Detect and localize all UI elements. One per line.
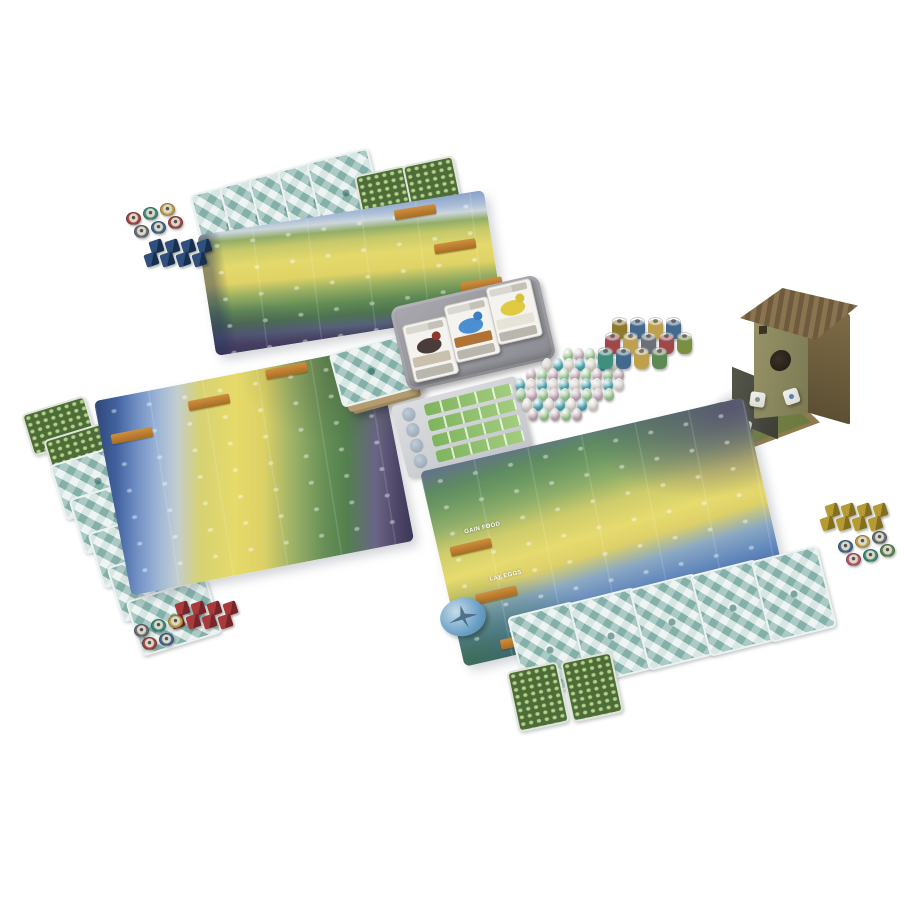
food-token	[855, 535, 870, 548]
food-token	[126, 212, 141, 225]
action-cube	[819, 515, 835, 531]
action-cube	[175, 251, 191, 267]
action-cube	[217, 613, 233, 629]
action-cube	[867, 515, 883, 531]
food-token	[159, 633, 174, 646]
action-cube	[851, 515, 867, 531]
food-token	[168, 615, 183, 628]
food-token	[134, 624, 149, 637]
food-token	[151, 221, 166, 234]
food-token	[863, 549, 878, 562]
egg	[539, 408, 549, 421]
round-goal-tile	[413, 453, 429, 469]
egg	[604, 388, 614, 401]
food-token	[872, 531, 887, 544]
action-cube	[835, 515, 851, 531]
food-token	[880, 544, 895, 557]
tabletop-photo: GAIN FOOD LAY EGGS DRAW BIRD CARDS	[0, 0, 910, 910]
egg	[528, 408, 538, 421]
action-banner	[434, 238, 477, 254]
action-banner	[187, 393, 230, 411]
food-token	[151, 619, 166, 632]
food-token	[838, 540, 853, 553]
action-banner	[449, 538, 492, 557]
egg	[588, 398, 598, 411]
food-die	[749, 391, 766, 408]
food-token	[160, 203, 175, 216]
food-token-stack	[598, 350, 613, 369]
round-goal-tile	[405, 422, 421, 438]
food-token	[143, 207, 158, 220]
egg	[550, 408, 560, 421]
mat-action-label: GAIN FOOD	[464, 521, 501, 535]
action-cube	[143, 251, 159, 267]
mat-action-label: LAY EGGS	[489, 570, 522, 583]
die-face-symbol	[788, 393, 794, 399]
action-banner	[110, 427, 153, 445]
food-token-stack	[652, 350, 667, 369]
birdhouse-window	[759, 325, 767, 334]
food-token-stack	[634, 350, 649, 369]
action-banner	[394, 204, 437, 220]
food-token	[168, 216, 183, 229]
food-token	[142, 637, 157, 650]
die-face-symbol	[755, 397, 761, 403]
action-banner	[265, 362, 308, 380]
round-goal-tile	[401, 406, 417, 422]
birdhouse-entry-hole	[770, 349, 791, 372]
food-token-stack	[677, 335, 692, 354]
egg	[572, 408, 582, 421]
egg	[614, 378, 624, 391]
food-token-stack	[616, 350, 631, 369]
action-banner	[475, 585, 518, 604]
food-token	[134, 225, 149, 238]
bird-glyph-icon	[446, 602, 480, 632]
action-cube	[159, 251, 175, 267]
round-goal-tile	[409, 437, 425, 453]
egg	[561, 408, 571, 421]
food-token	[846, 553, 861, 566]
